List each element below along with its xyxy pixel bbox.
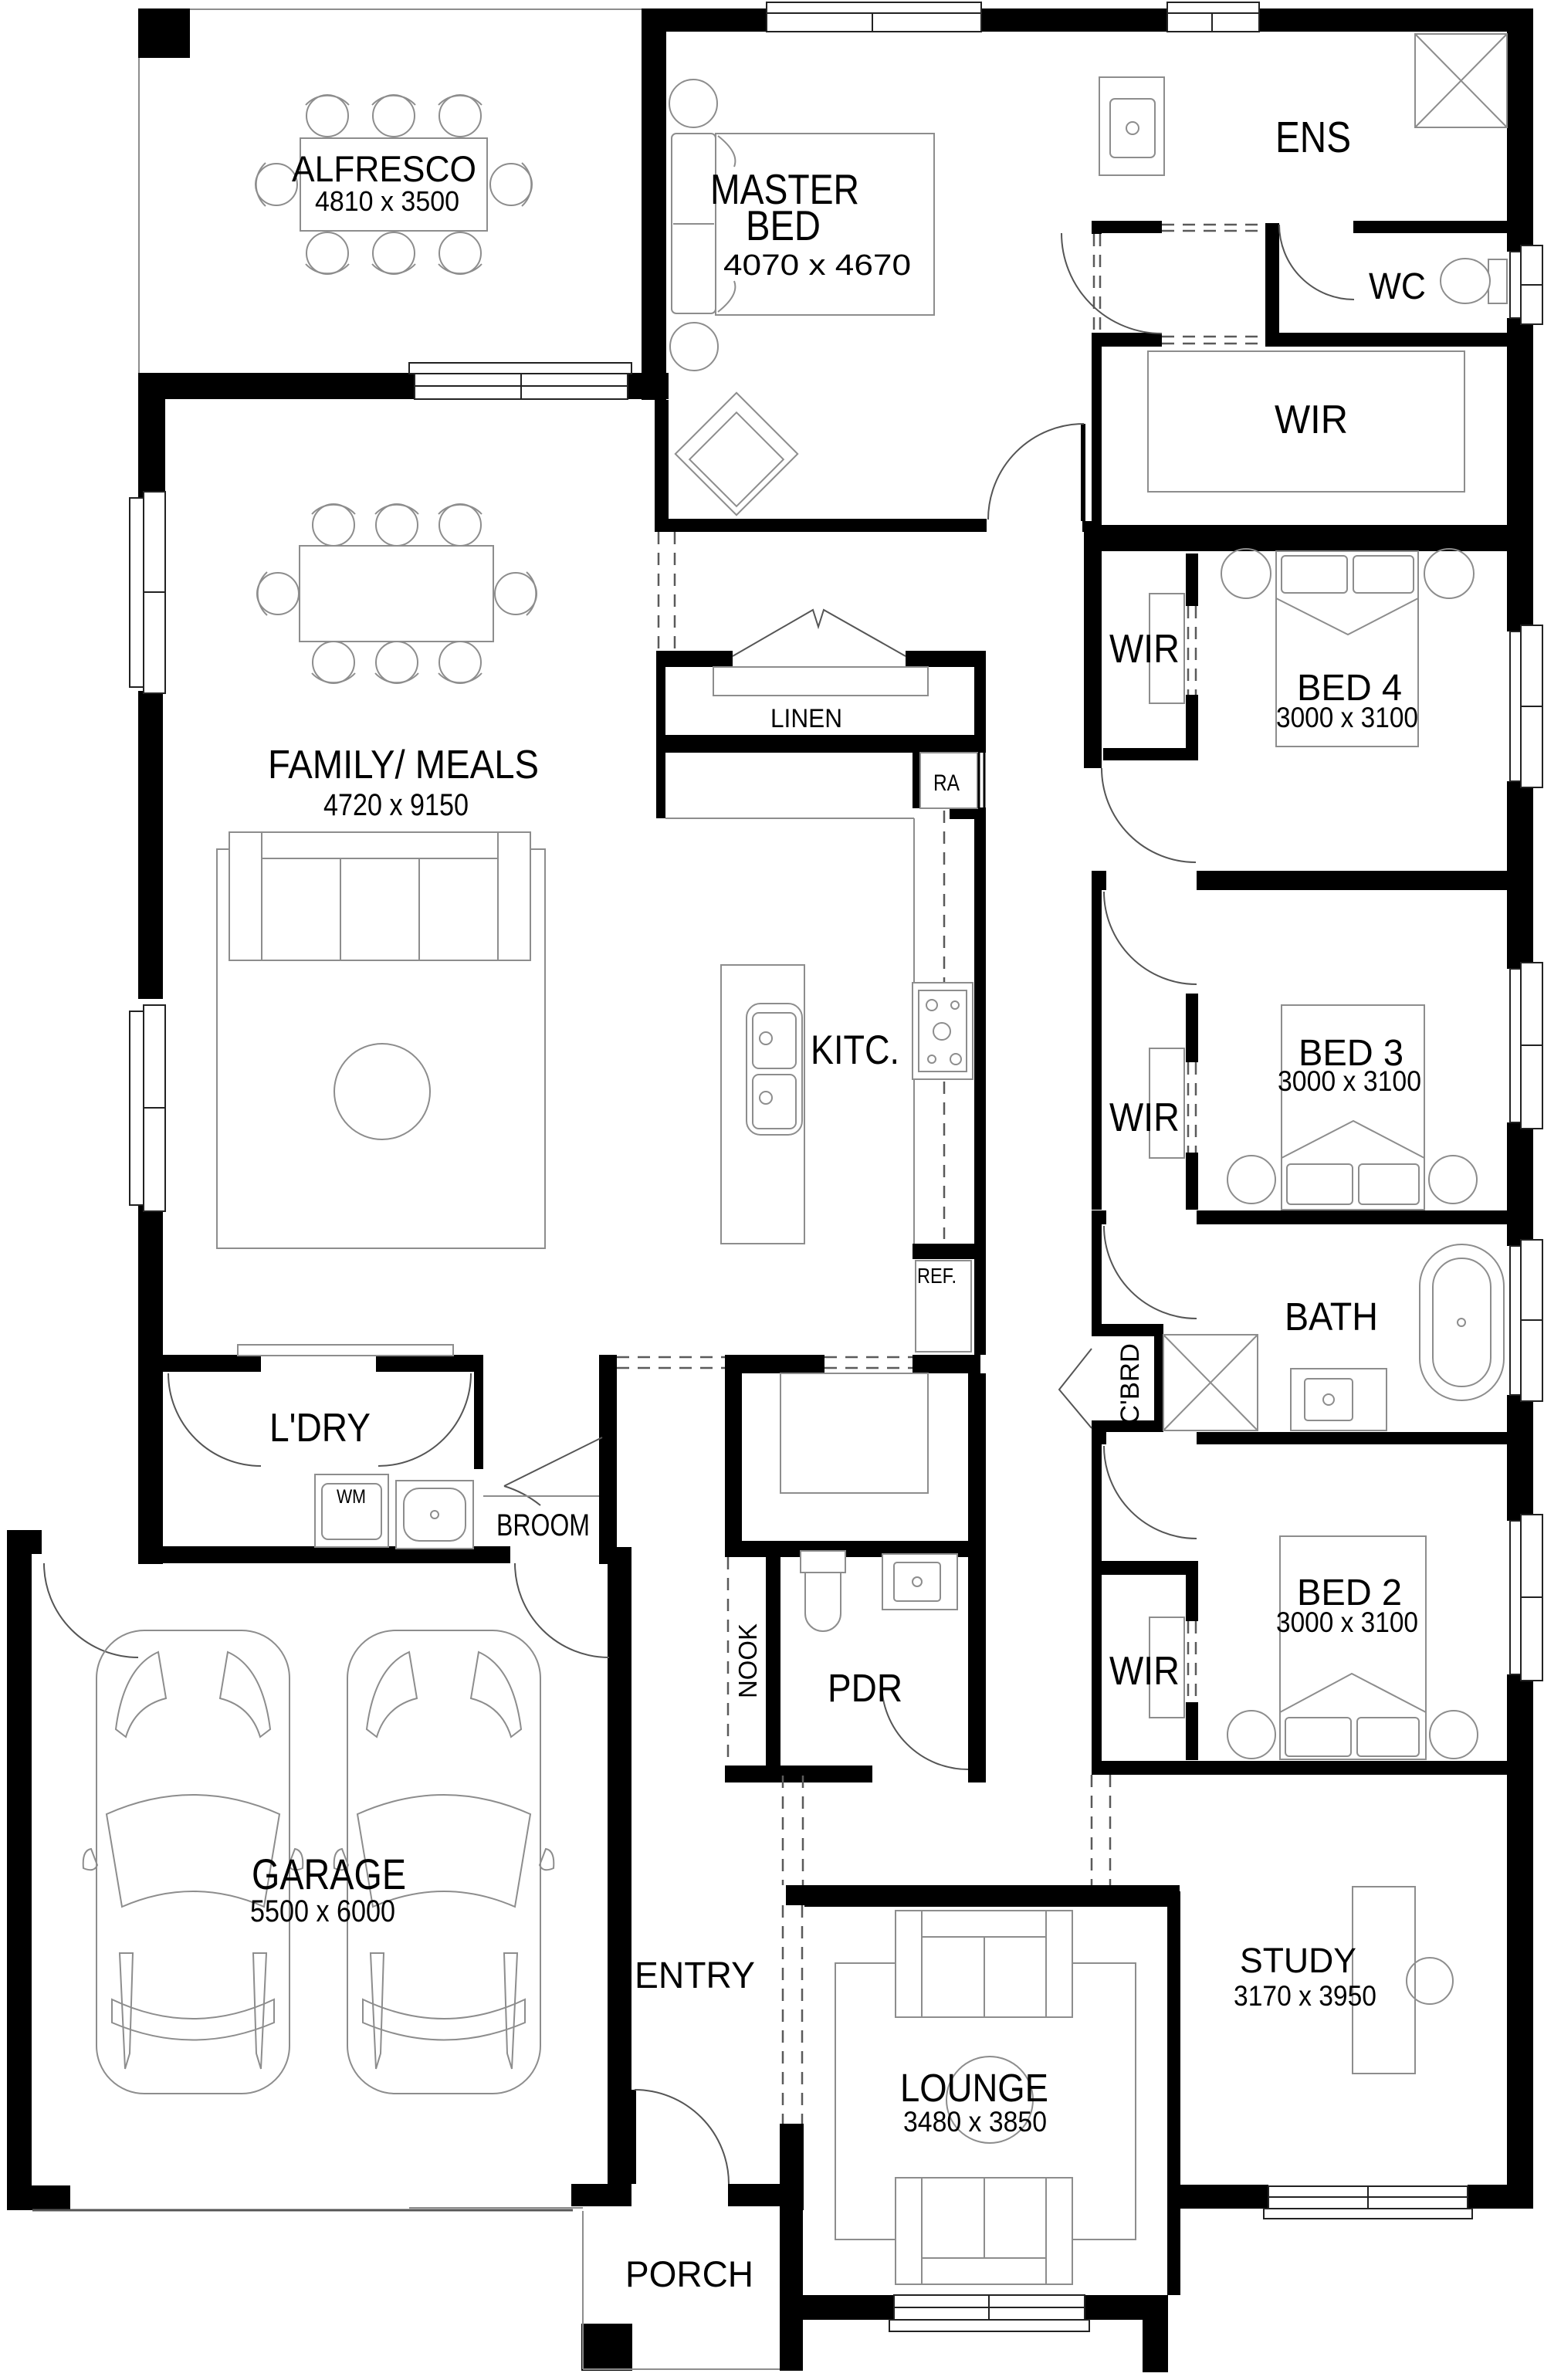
svg-text:PORCH: PORCH <box>625 2253 753 2294</box>
svg-text:NOOK: NOOK <box>733 1623 762 1698</box>
svg-text:3000 x 3100: 3000 x 3100 <box>1278 1065 1421 1097</box>
svg-text:RA: RA <box>933 770 960 796</box>
svg-text:3170 x 3950: 3170 x 3950 <box>1234 1980 1376 2012</box>
svg-text:WIR: WIR <box>1275 398 1348 442</box>
svg-text:FAMILY/ MEALS: FAMILY/ MEALS <box>268 743 539 787</box>
svg-text:ENTRY: ENTRY <box>635 1955 755 1996</box>
svg-text:ENS: ENS <box>1275 113 1351 162</box>
svg-text:3000 x 3100: 3000 x 3100 <box>1276 702 1418 733</box>
svg-text:BED: BED <box>746 201 821 249</box>
svg-text:WIR: WIR <box>1109 627 1180 672</box>
svg-text:KITC.: KITC. <box>811 1027 899 1073</box>
svg-text:4810 x 3500: 4810 x 3500 <box>315 185 459 217</box>
svg-text:LINEN: LINEN <box>770 704 842 733</box>
svg-text:PDR: PDR <box>828 1666 902 1710</box>
svg-text:5500 x 6000: 5500 x 6000 <box>250 1894 395 1928</box>
svg-text:WC: WC <box>1369 266 1426 307</box>
svg-text:3480 x 3850: 3480 x 3850 <box>903 2106 1047 2138</box>
svg-text:BATH: BATH <box>1285 1295 1378 1339</box>
svg-text:ALFRESCO: ALFRESCO <box>292 148 476 189</box>
svg-text:WM: WM <box>337 1486 366 1508</box>
svg-text:4720 x 9150: 4720 x 9150 <box>323 788 469 822</box>
svg-text:REF.: REF. <box>917 1264 957 1288</box>
svg-text:BROOM: BROOM <box>496 1508 590 1542</box>
svg-text:LOUNGE: LOUNGE <box>900 2066 1048 2110</box>
svg-text:3000 x 3100: 3000 x 3100 <box>1276 1606 1418 1638</box>
svg-text:GARAGE: GARAGE <box>252 1850 406 1898</box>
svg-text:L'DRY: L'DRY <box>269 1406 371 1451</box>
svg-text:C'BRD: C'BRD <box>1116 1343 1145 1424</box>
svg-text:4070 x 4670: 4070 x 4670 <box>723 249 911 282</box>
svg-text:WIR: WIR <box>1109 1649 1180 1694</box>
svg-text:STUDY: STUDY <box>1240 1941 1356 1980</box>
svg-text:WIR: WIR <box>1109 1095 1180 1140</box>
